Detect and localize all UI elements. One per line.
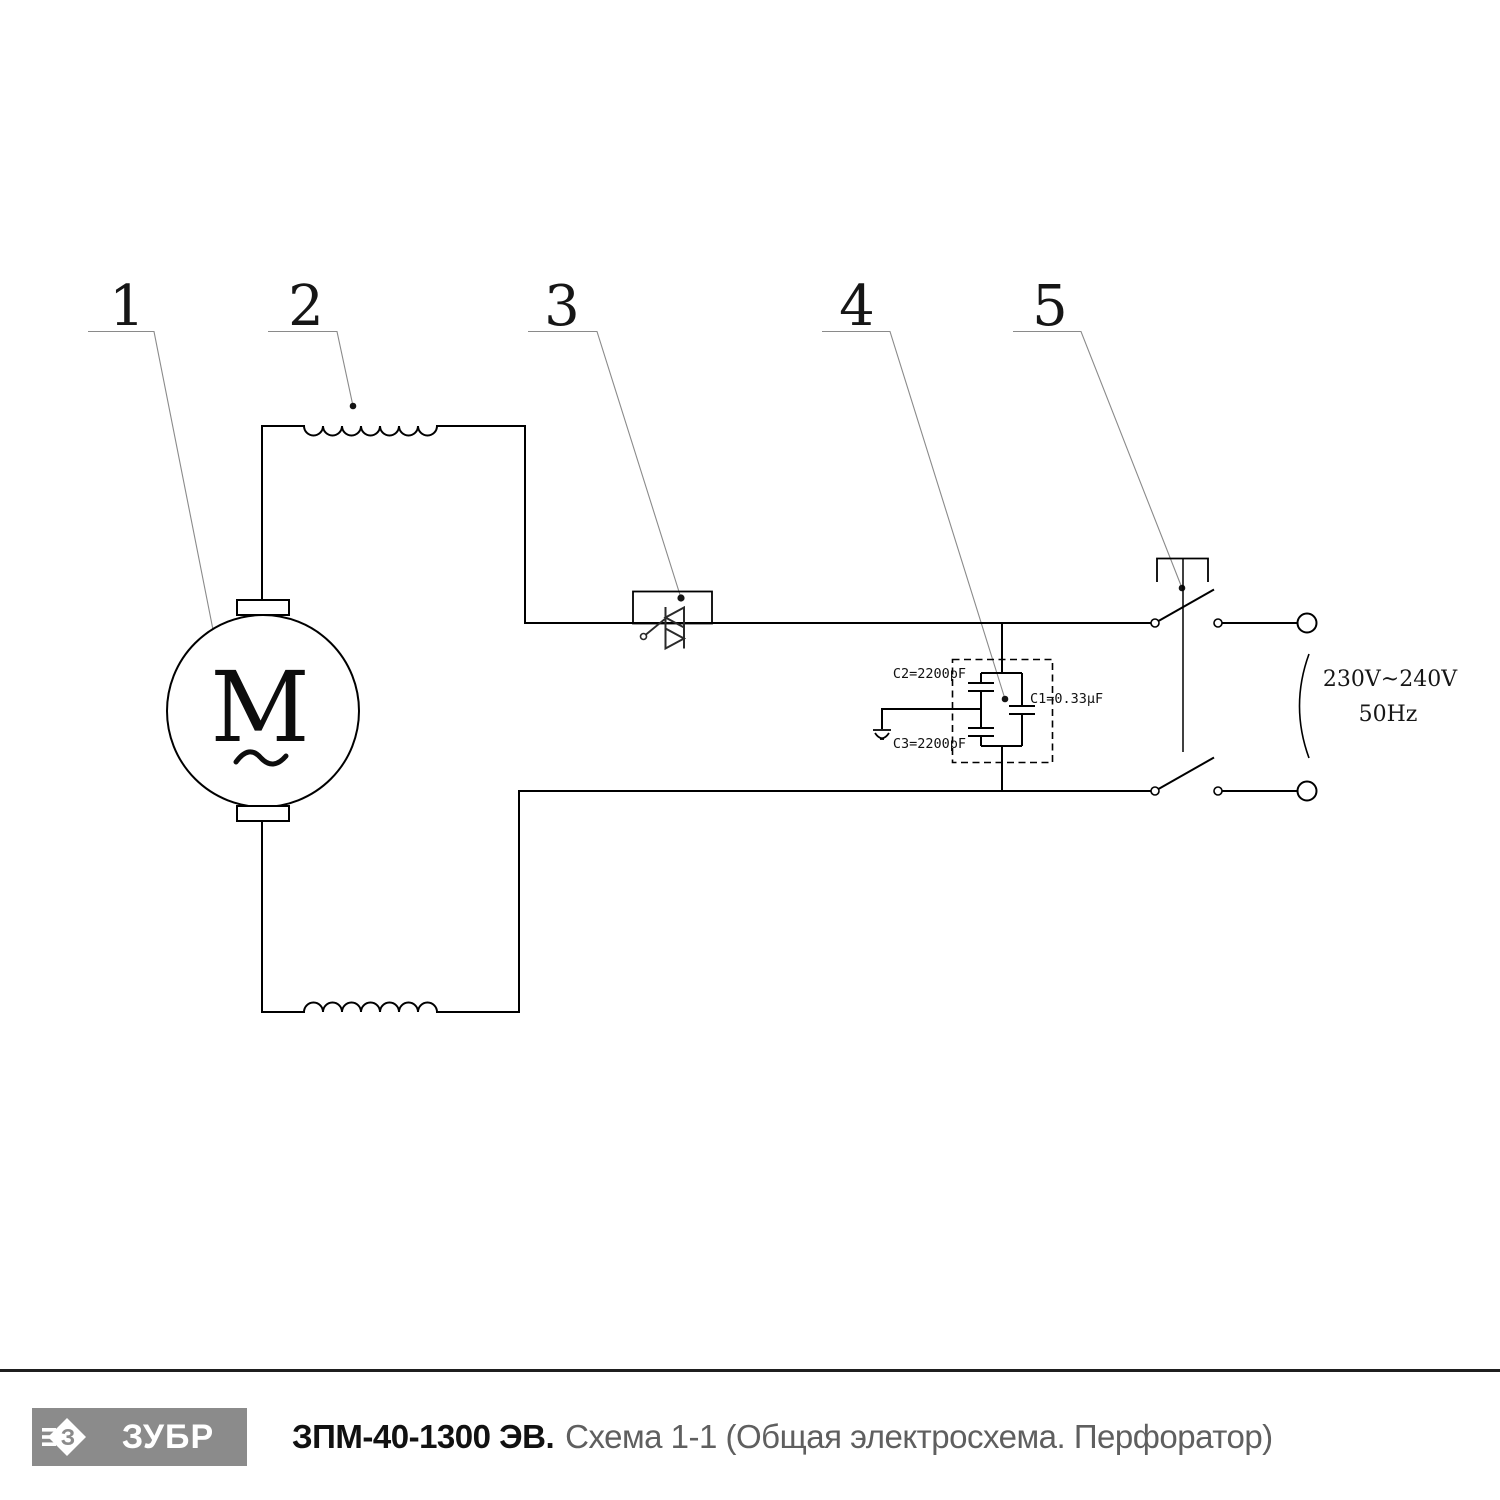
leader-line-1 (88, 332, 217, 651)
zubr-logo: З ЗУБР (32, 1408, 247, 1466)
switch-contact-bottom-left (1151, 787, 1159, 795)
capacitor-c1-label: C1=0.33µF (1030, 691, 1103, 707)
capacitor-c1-plates (1009, 706, 1035, 714)
zubr-logo-text: ЗУБР (92, 1408, 244, 1466)
switch-contact-top-left (1151, 619, 1159, 627)
supply-terminal-bottom (1298, 782, 1317, 801)
switch-blade-top (1159, 590, 1215, 622)
motor-brush-top (237, 600, 289, 615)
schema-subtitle: Схема 1-1 (Общая электросхема. Перфорато… (565, 1418, 1273, 1456)
triac-module (633, 592, 712, 649)
capacitor-c2-label: C2=2200pF (893, 666, 966, 682)
capacitor-c3-label: C3=2200pF (893, 736, 966, 752)
leader-line-5 (1013, 332, 1182, 589)
footer-rule (0, 1369, 1500, 1372)
switch-blade-bottom (1159, 758, 1215, 790)
capacitor-c2-plates (968, 683, 994, 691)
switch-contact-top-right (1214, 619, 1222, 627)
earth-ground-icon (873, 730, 891, 739)
zubr-logo-letter: З (61, 1424, 75, 1450)
model-name: ЗПМ-40-1300 ЭВ. (292, 1418, 554, 1456)
power-switch (1151, 559, 1317, 801)
supply-brace (1300, 654, 1310, 758)
leader-dot-5 (1179, 585, 1186, 592)
switch-contact-bottom-right (1214, 787, 1222, 795)
leader-line-4 (822, 332, 1005, 700)
motor-letter: M (210, 651, 309, 764)
footer-title: ЗПМ-40-1300 ЭВ. Схема 1-1 (Общая электро… (292, 1408, 1273, 1466)
part-label-5: 5 (1032, 274, 1068, 339)
wire-upper-run (262, 426, 1151, 623)
motor-symbol: M (167, 600, 359, 821)
circuit-wiring (262, 426, 1151, 1012)
zubr-logo-icon: З (42, 1414, 92, 1460)
leader-dot-4 (1002, 696, 1009, 703)
supply-terminal-top (1298, 614, 1317, 633)
leader-dot-2 (350, 403, 357, 410)
part-label-2: 2 (288, 274, 324, 339)
wiring-diagram: 1 2 3 4 5 M (0, 0, 1500, 1360)
capacitor-module: C2=2200pF C1=0.33µF C3=2200pF (873, 660, 1103, 763)
callout-dots (214, 403, 1186, 703)
wire-lower-run (262, 791, 1151, 1012)
supply-frequency-label: 50Hz (1359, 702, 1418, 727)
page: { "schematic": { "part_labels": ["1", "2… (0, 0, 1500, 1500)
motor-brush-bottom (237, 806, 289, 821)
leader-dot-3 (677, 594, 684, 601)
ground-wire (882, 709, 981, 729)
capacitor-c3-plates (968, 728, 994, 736)
supply-voltage-label: 230V~240V (1323, 667, 1458, 692)
part-label-1: 1 (109, 274, 145, 339)
leader-line-2 (268, 332, 353, 407)
mains-supply: 230V~240V 50Hz (1300, 654, 1459, 758)
part-label-3: 3 (544, 274, 580, 339)
part-label-4: 4 (839, 274, 875, 339)
triac-housing (633, 592, 712, 624)
leader-line-3 (528, 332, 681, 599)
triac-symbol-icon (641, 607, 685, 649)
